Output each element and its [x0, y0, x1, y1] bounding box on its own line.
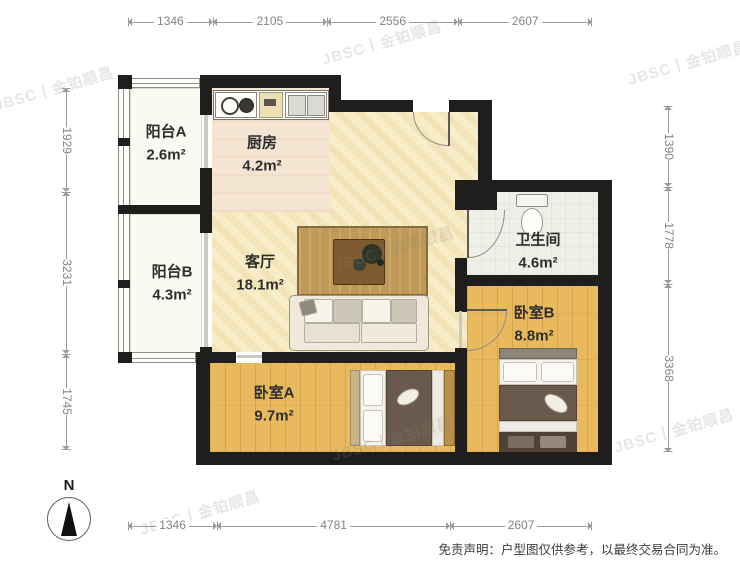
balcony-a-window-top — [130, 78, 200, 88]
dim-label: 1745 — [56, 389, 75, 416]
room-area: 9.7m² — [254, 405, 295, 428]
room-name: 阳台A — [146, 122, 187, 145]
wall-segment — [200, 75, 341, 88]
bed-a-blanket — [386, 370, 432, 446]
dim-segment: 1346 — [128, 14, 213, 30]
room-label-bedroom-b: 卧室B 8.8m² — [514, 303, 555, 348]
dimension-chain-bottom: 134647812607 — [128, 518, 592, 534]
room-name: 卧室A — [254, 383, 295, 406]
compass-needle-icon — [61, 502, 77, 536]
window-mullion — [118, 352, 132, 363]
dim-segment: 4781 — [217, 518, 450, 534]
wall-segment — [455, 348, 467, 452]
wall-segment — [455, 275, 612, 286]
dim-segment: 1745 — [58, 354, 74, 450]
room-name: 客厅 — [236, 252, 284, 275]
kitchen-item — [264, 99, 276, 106]
dim-label: 3231 — [56, 260, 75, 287]
dim-label: 1929 — [56, 127, 75, 154]
bedroom-a-door-opening — [237, 355, 262, 358]
floorplan-canvas: 阳台A 2.6m² 厨房 4.2m² 阳台B 4.3m² 客厅 18.1m² 卫… — [0, 0, 740, 561]
wall-segment — [262, 352, 455, 363]
wall-segment — [200, 82, 212, 115]
dimension-chain-top: 1346210525562607 — [128, 14, 592, 30]
dim-segment: 1390 — [660, 106, 676, 187]
dim-label: 1778 — [658, 222, 677, 249]
sofa-cushion — [362, 299, 391, 323]
sink-basin — [288, 95, 306, 116]
sofa-cushion — [333, 299, 362, 323]
bed-b-foot-pillow — [508, 436, 534, 448]
compass-north-label: N — [58, 477, 80, 494]
bed-b-headboard — [499, 348, 577, 359]
wall-segment — [478, 100, 492, 192]
balcony-window-left — [118, 78, 130, 363]
watermark: JBSC丨金铂顺昌 — [626, 35, 740, 89]
dim-segment: 1929 — [58, 88, 74, 192]
dim-segment: 3368 — [660, 284, 676, 452]
sofa-seat — [304, 323, 360, 343]
dim-segment: 3231 — [58, 192, 74, 354]
room-name: 阳台B — [152, 262, 193, 285]
wall-segment — [455, 286, 467, 312]
bed-b-pillow — [503, 362, 537, 382]
bed-a-sheet-end — [432, 370, 444, 446]
disclaimer-text: 免责声明：户型图仅供参考，以最终交易合同为准。 — [438, 539, 726, 558]
room-label-kitchen: 厨房 4.2m² — [242, 133, 281, 178]
wall-segment — [200, 168, 212, 233]
bed-b-sheet-end — [499, 421, 577, 432]
dim-label: 4781 — [317, 519, 350, 532]
bedroom-b-door-opening — [459, 311, 462, 348]
entrance-door-leaf — [448, 112, 450, 146]
dim-label: 2607 — [505, 519, 538, 532]
dimension-chain-left: 192932311745 — [58, 88, 74, 450]
dim-segment: 2607 — [450, 518, 592, 534]
bed-b-pillow — [541, 362, 574, 382]
window-mullion — [118, 138, 130, 146]
dim-label: 3368 — [658, 355, 677, 382]
wall-segment — [196, 452, 612, 465]
balcony-b-window-bottom — [130, 352, 196, 363]
bed-a-pillow — [363, 374, 383, 406]
stove-burner — [221, 97, 239, 115]
plant — [353, 258, 366, 271]
room-area: 18.1m² — [236, 274, 284, 297]
room-label-balcony-a: 阳台A 2.6m² — [146, 122, 187, 167]
wall-segment — [196, 352, 210, 465]
dim-label: 1346 — [154, 15, 187, 28]
room-area: 4.2m² — [242, 155, 281, 178]
bed-a-headboard — [350, 370, 360, 446]
wall-segment — [335, 100, 413, 112]
plant — [377, 259, 384, 266]
room-area: 2.6m² — [146, 144, 187, 167]
wall-segment — [455, 258, 467, 286]
room-label-bathroom: 卫生间 4.6m² — [515, 230, 560, 275]
window-mullion — [118, 75, 132, 89]
sofa-seat — [361, 323, 417, 343]
sink-basin — [307, 95, 325, 116]
dim-label: 2556 — [376, 15, 409, 28]
room-area: 4.6m² — [515, 252, 560, 275]
dim-segment: 2105 — [213, 14, 327, 30]
room-label-living: 客厅 18.1m² — [236, 252, 284, 297]
toilet-tank — [516, 194, 548, 207]
dim-segment: 1346 — [128, 518, 217, 534]
dim-label: 1346 — [156, 519, 189, 532]
dim-label: 2105 — [253, 15, 286, 28]
dim-segment: 1778 — [660, 187, 676, 285]
balcony-a-slider — [204, 115, 208, 168]
room-name: 卧室B — [514, 303, 555, 326]
sofa-cushion — [391, 299, 417, 323]
room-label-balcony-b: 阳台B 4.3m² — [152, 262, 193, 307]
stove-burner — [239, 98, 254, 113]
bed-b-foot-pillow — [540, 436, 566, 448]
wall-segment — [200, 347, 212, 363]
dimension-chain-right: 139017783368 — [660, 106, 676, 452]
dim-segment: 2556 — [327, 14, 459, 30]
window-mullion — [118, 280, 130, 288]
dim-label: 1390 — [658, 133, 677, 160]
room-area: 4.3m² — [152, 284, 193, 307]
room-name: 厨房 — [242, 133, 281, 156]
dim-segment: 2607 — [458, 14, 592, 30]
room-label-bedroom-a: 卧室A 9.7m² — [254, 383, 295, 428]
wall-segment — [598, 180, 612, 452]
bed-a-pillow — [363, 410, 383, 442]
dim-label: 2607 — [509, 15, 542, 28]
bed-a-side-table — [444, 370, 455, 446]
wall-segment — [455, 180, 497, 210]
wall-segment — [210, 352, 236, 363]
window-mullion — [118, 205, 202, 214]
balcony-b-slider — [204, 233, 208, 347]
room-area: 8.8m² — [514, 325, 555, 348]
room-name: 卫生间 — [515, 230, 560, 253]
